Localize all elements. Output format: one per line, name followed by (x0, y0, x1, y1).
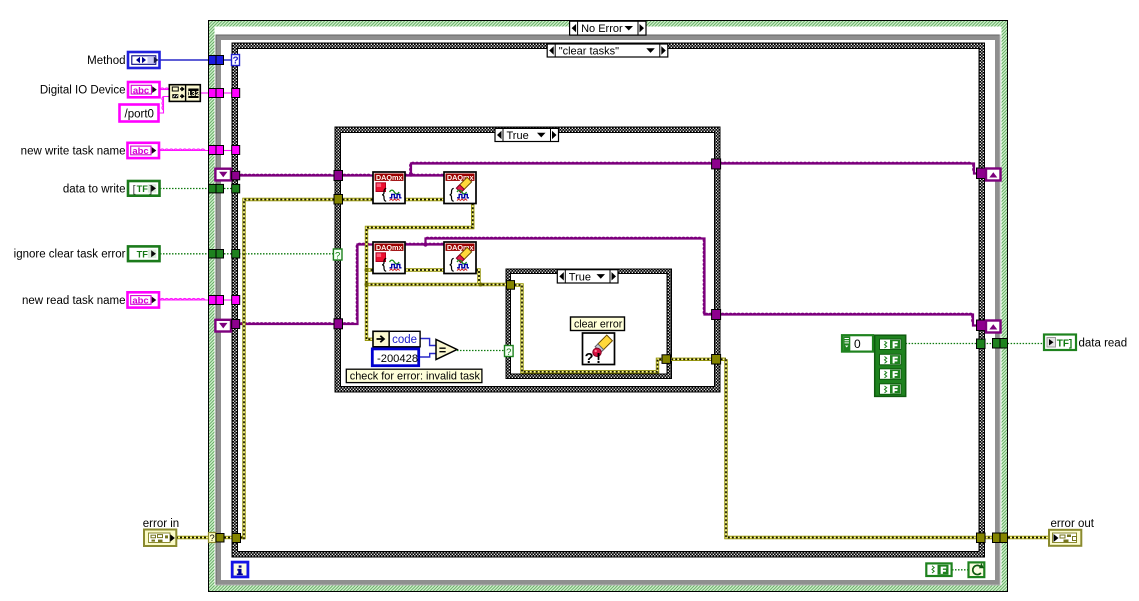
svg-text:Digital IO Device: Digital IO Device (40, 85, 126, 97)
svg-text:?: ? (585, 351, 594, 367)
svg-text:?: ? (506, 347, 511, 358)
svg-text:?: ? (210, 533, 215, 543)
svg-text:abc: abc (132, 296, 148, 307)
svg-text:DAQmx: DAQmx (376, 173, 403, 182)
svg-text:new read task name: new read task name (22, 295, 126, 307)
svg-text:Method: Method (87, 55, 125, 67)
svg-text:abc: abc (132, 146, 148, 157)
svg-text:0: 0 (854, 337, 861, 351)
svg-text:"clear tasks": "clear tasks" (559, 46, 619, 58)
svg-text:/port0: /port0 (125, 108, 154, 120)
svg-text:132: 132 (187, 89, 200, 98)
svg-text:ignore clear task error: ignore clear task error (14, 249, 126, 261)
svg-text:DAQmx: DAQmx (376, 243, 403, 252)
svg-text:data read: data read (1079, 338, 1128, 350)
svg-text:data to write: data to write (63, 183, 126, 195)
svg-text:?: ? (232, 56, 238, 67)
svg-text:True: True (507, 130, 529, 142)
svg-text:check for error: invalid task: check for error: invalid task (350, 371, 481, 383)
svg-text:=: = (439, 343, 446, 357)
svg-text:TF: TF (137, 249, 149, 259)
svg-text:True: True (569, 271, 591, 283)
svg-text:code: code (392, 334, 417, 346)
svg-text:clear error: clear error (574, 318, 623, 330)
svg-text:TF: TF (137, 184, 149, 194)
svg-text:?: ? (335, 250, 340, 261)
svg-text:-200428: -200428 (377, 353, 418, 365)
svg-text:!: ! (596, 351, 601, 367)
svg-text:[: [ (133, 183, 136, 195)
svg-text:new write task name: new write task name (21, 146, 126, 158)
svg-text:error out: error out (1051, 518, 1095, 530)
svg-text:abc: abc (133, 85, 149, 96)
svg-text:TF]: TF] (1057, 338, 1073, 349)
svg-text:error in: error in (143, 518, 179, 530)
svg-text:No Error: No Error (581, 23, 623, 35)
